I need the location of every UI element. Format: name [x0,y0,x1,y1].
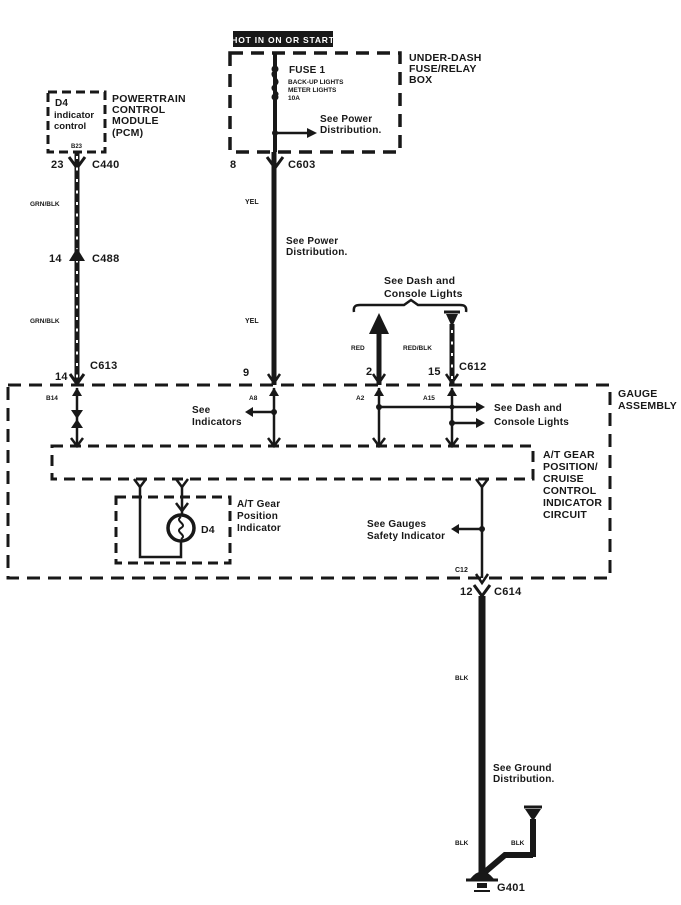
wire-label-red: RED [351,345,365,352]
wire-label-grnblk-lower: GRN/BLK [30,318,60,325]
c612-label: C612 [459,361,487,373]
bulb-return-wire [140,487,181,557]
dash-console-feed: See Dash and Console Lights RED RED/BLK … [351,275,487,402]
hot-label: HOT IN ON OR START [231,35,335,45]
see-power-dist-1: See Power [286,236,338,247]
see-dash-heading-1: See Dash and [384,275,455,287]
c613-label: C613 [90,360,118,372]
wire-label-grnblk-upper: GRN/BLK [30,201,60,208]
ground-icon [470,872,494,880]
see-power-dist-2: Distribution. [286,247,348,258]
c488-label: C488 [92,253,120,265]
circuit-label-4: CONTROL [543,485,597,497]
c614-label: C614 [494,586,522,598]
pcm-pin-tag: B23 [71,144,83,150]
c603-pin: 8 [230,159,236,171]
circuit-label-1: A/T GEAR [543,449,595,461]
right-arrow-icon [476,418,485,428]
indicator-box-label-3: Indicator [237,523,281,534]
power-source-section: HOT IN ON OR START UNDER-DASH FUSE/RELAY… [230,31,482,171]
wire-blk-stub-bend [485,855,533,872]
pin-b14: B14 [46,395,58,402]
bulb-label: D4 [201,524,215,536]
right-arrow-icon [307,128,317,138]
fuse-box-label-3: BOX [409,74,432,86]
see-dash-heading-2: Console Lights [384,288,463,300]
c440-pin: 23 [51,159,64,171]
at-gear-circuit-box [52,446,533,479]
see-indicators-2: Indicators [192,417,242,428]
left-arrow-icon [245,407,253,417]
circuit-label-2: POSITION/ [543,461,598,473]
see-power-2: Distribution. [320,125,382,136]
bracket-icon [354,300,466,312]
indicator-box-label-1: A/T Gear [237,499,280,510]
wire-label-redblk: RED/BLK [403,345,432,352]
wire-label-yel-lower: YEL [245,318,259,325]
g401-label: G401 [497,882,525,894]
wire-label-blk-upper: BLK [455,675,469,682]
c613-pin: 14 [55,371,68,383]
yel-wire-run: YEL YEL See Power Distribution. 9 A8 [243,152,348,402]
pcm-box-label-2: indicator [54,110,94,121]
right-arrow-icon [476,402,485,412]
ground-icon-base [477,883,487,888]
pin-2: 2 [366,366,372,378]
splice-connector-icon [71,410,83,419]
wire-label-blk-lower: BLK [455,840,469,847]
circuit-label-6: CIRCUIT [543,509,587,521]
wiring-diagram-page: HOT IN ON OR START UNDER-DASH FUSE/RELAY… [0,0,681,905]
gauge-label-2: ASSEMBLY [618,400,677,412]
pin-c12: C12 [455,567,468,574]
fuse-name: FUSE 1 [289,65,325,76]
pin-a2: A2 [356,395,365,402]
see-dash-1: See Dash and [494,403,562,414]
splice-connector-icon [71,419,83,428]
pcm-label-4: (PCM) [112,127,143,139]
c603-label: C603 [288,159,316,171]
c614-pin: 12 [460,586,473,598]
see-ground-1: See Ground [493,763,552,774]
pin-a8: A8 [249,395,258,402]
ground-section: 12 C614 BLK BLK See Ground Distribution.… [455,585,555,894]
wire-label-blk-stub: BLK [511,840,525,847]
gauge-label-1: GAUGE [618,388,658,400]
see-ground-2: Distribution. [493,774,555,785]
pcm-label-3: MODULE [112,115,159,127]
female-connector-icon [474,585,490,596]
c488-pin: 14 [49,253,62,265]
pcm-section: D4 indicator control B23 POWERTRAIN CONT… [30,92,186,402]
fuse-detail-3: 10A [288,95,300,102]
wire-label-yel-upper: YEL [245,199,259,206]
pcm-box-label-1: D4 [55,98,68,109]
c440-label: C440 [92,159,120,171]
see-power-1: See Power [320,114,372,125]
see-gauges-2: Safety Indicator [367,531,445,542]
fuse-detail-2: METER LIGHTS [288,87,337,94]
inline-connector-icon [69,248,85,261]
circuit-label-5: INDICATOR [543,497,602,509]
wiring-diagram: HOT IN ON OR START UNDER-DASH FUSE/RELAY… [0,0,681,905]
pin-a15: A15 [423,395,435,402]
fuse-detail-1: BACK-UP LIGHTS [288,79,344,86]
see-gauges-1: See Gauges [367,519,426,530]
circuit-label-3: CRUISE [543,473,584,485]
pin-9: 9 [243,367,249,379]
left-arrow-icon [451,524,459,534]
pcm-box-label-3: control [54,121,86,132]
see-indicators-1: See [192,405,211,416]
pin-15: 15 [428,366,441,378]
see-dash-2: Console Lights [494,417,569,428]
bulb-filament-icon [179,517,183,539]
gauge-assembly-section: GAUGE ASSEMBLY See Indicators See Dash a… [8,385,677,583]
indicator-box-label-2: Position [237,511,278,522]
